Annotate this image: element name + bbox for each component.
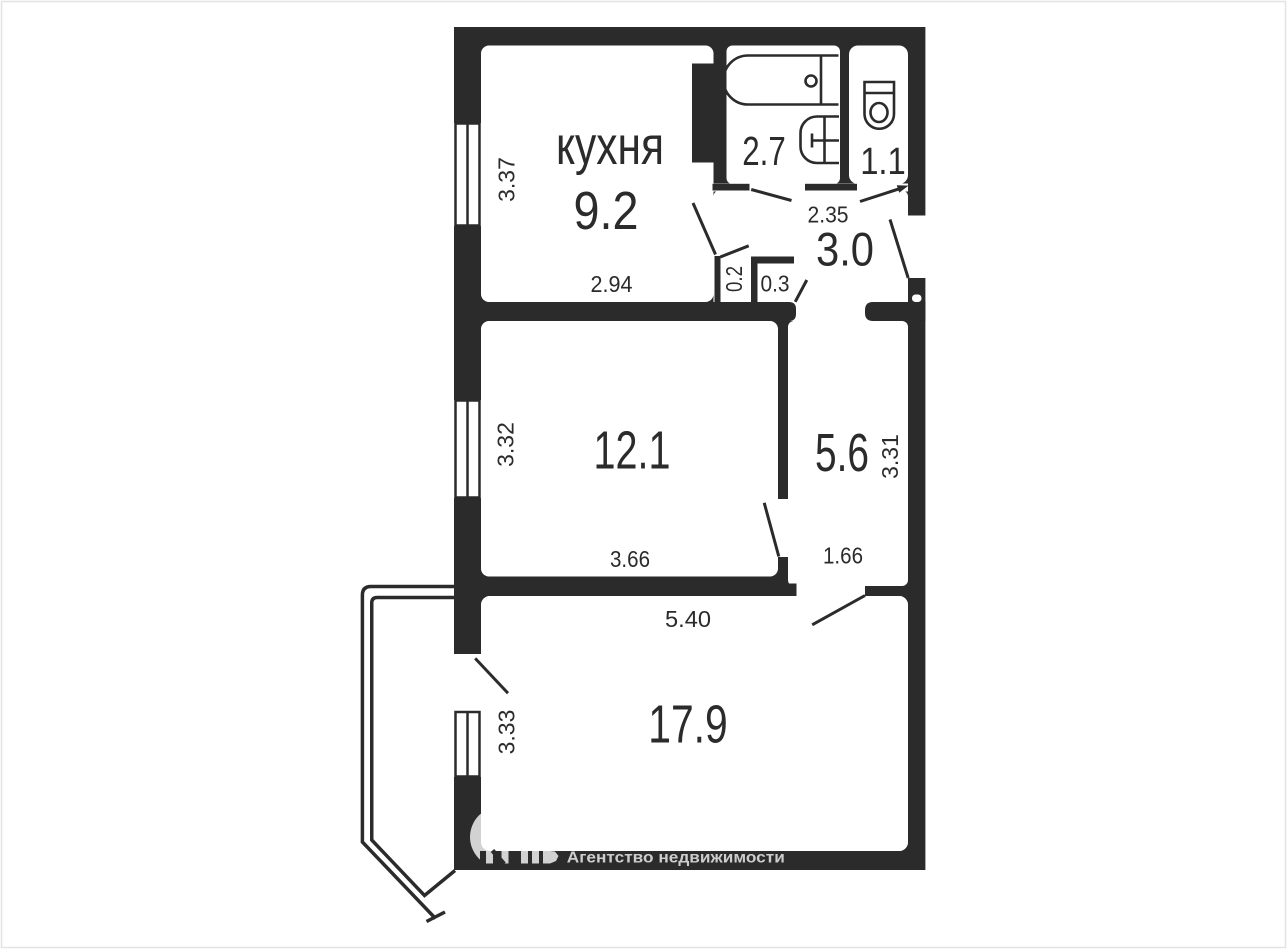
svg-text:2.94: 2.94	[591, 271, 633, 297]
svg-text:9.2: 9.2	[574, 181, 639, 241]
svg-text:2.35: 2.35	[808, 202, 849, 228]
svg-text:5.40: 5.40	[665, 606, 711, 632]
svg-text:17.9: 17.9	[648, 695, 728, 755]
svg-text:0.2: 0.2	[721, 266, 747, 292]
svg-text:3.31: 3.31	[877, 434, 903, 479]
svg-text:5.6: 5.6	[815, 423, 869, 483]
svg-text:2.7: 2.7	[742, 128, 786, 174]
svg-text:1.1: 1.1	[860, 141, 906, 183]
svg-text:1.66: 1.66	[823, 542, 863, 568]
svg-text:12.1: 12.1	[594, 421, 671, 481]
svg-text:3.66: 3.66	[610, 546, 650, 572]
svg-text:кухня: кухня	[556, 116, 664, 176]
svg-text:3.0: 3.0	[816, 223, 874, 276]
svg-text:0.3: 0.3	[761, 271, 790, 297]
svg-text:3.32: 3.32	[492, 422, 518, 467]
svg-text:Агентство недвижимости: Агентство недвижимости	[567, 850, 785, 867]
svg-text:3.37: 3.37	[493, 157, 519, 202]
svg-text:3.33: 3.33	[493, 710, 519, 755]
